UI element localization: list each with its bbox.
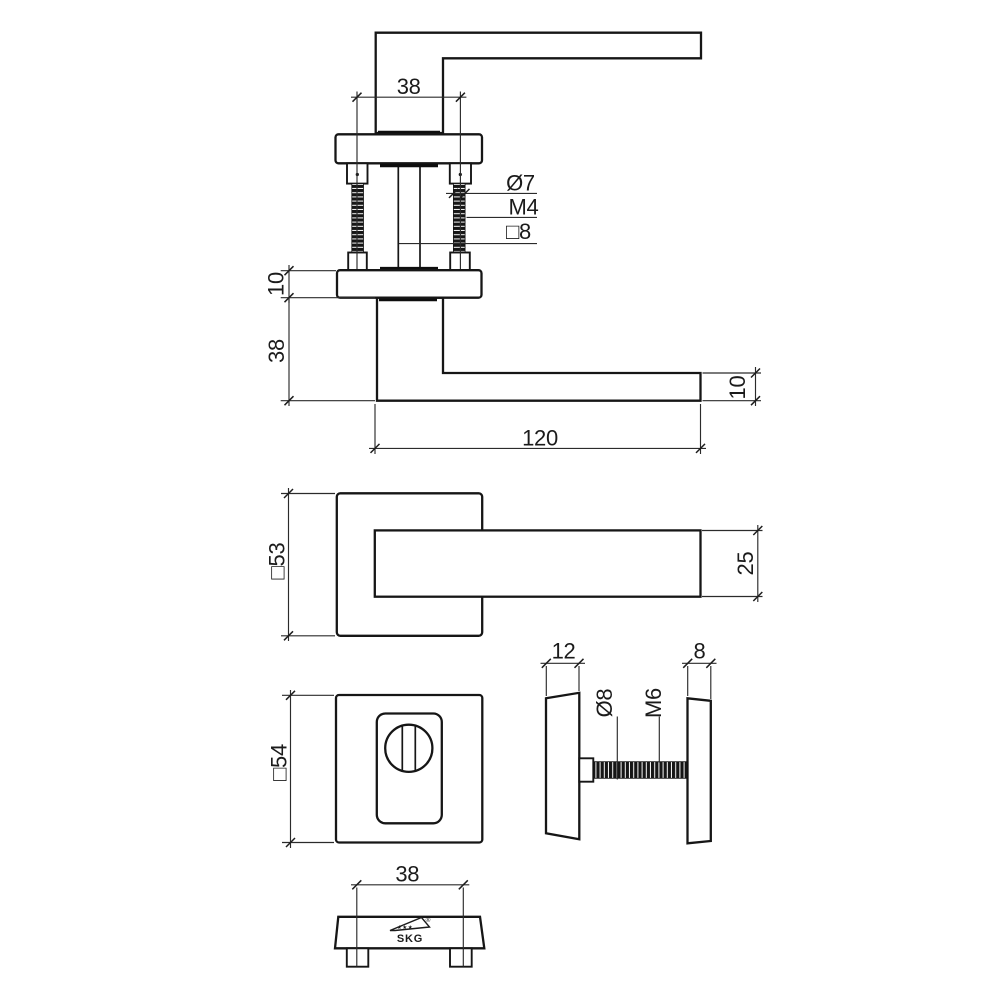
dim-rose-size: □53 bbox=[265, 488, 336, 641]
lever-top-view-outline bbox=[376, 33, 701, 133]
inner-plate-thickness-label: 8 bbox=[694, 639, 706, 664]
exploded-top-view: 38 Ø7 M4 □8 bbox=[336, 33, 702, 273]
dim-lever-width: 25 bbox=[702, 525, 763, 602]
security-rose-side-view: Ø8 M6 12 8 bbox=[541, 639, 717, 844]
bolt-thread-label: M6 bbox=[641, 688, 666, 718]
lever-width-label: 25 bbox=[733, 552, 758, 576]
skg-logo-text: SKG bbox=[397, 933, 423, 945]
grip-height-label: 38 bbox=[264, 339, 289, 363]
rose-size-label: □53 bbox=[265, 543, 290, 580]
leader-bolt-thread: M6 bbox=[641, 688, 666, 763]
left-screw-thread bbox=[352, 184, 364, 253]
neck-width-label: 38 bbox=[397, 74, 421, 99]
technical-drawing-canvas: 38 Ø7 M4 □8 10 bbox=[0, 0, 1000, 1000]
outer-plate-thickness-label: 12 bbox=[552, 639, 576, 664]
dim-grip-height: 38 bbox=[264, 298, 375, 406]
bolt-shoulder bbox=[579, 758, 593, 781]
dim-outer-plate-thickness: 12 bbox=[541, 639, 586, 697]
dim-lever-length: 120 bbox=[369, 404, 706, 454]
spindle-square-label: □8 bbox=[506, 219, 531, 244]
inner-plate-side bbox=[688, 698, 711, 843]
screw-diameter-label: Ø7 bbox=[506, 171, 535, 196]
hole-spacing-label: 38 bbox=[395, 862, 419, 887]
screw-thread-label: M4 bbox=[509, 195, 539, 220]
handle-side-outline bbox=[377, 298, 701, 401]
lever-length-label: 120 bbox=[522, 426, 558, 451]
lever-front-bar bbox=[375, 530, 701, 596]
leader-screw-thread: M4 bbox=[467, 195, 539, 220]
right-foot bbox=[450, 948, 472, 966]
dim-inner-plate-thickness: 8 bbox=[682, 639, 717, 700]
bolt-diameter-label: Ø8 bbox=[592, 689, 617, 718]
bolt-thread bbox=[593, 762, 687, 779]
dim-security-rose-size: □54 bbox=[267, 690, 335, 848]
side-view: 10 38 10 120 bbox=[264, 265, 762, 454]
registered-mark: ® bbox=[426, 916, 431, 924]
skg-stars-icon: ★★★ bbox=[397, 925, 413, 931]
security-rose-front-view: □54 bbox=[267, 690, 483, 848]
security-rose-size-label: □54 bbox=[267, 744, 292, 781]
front-view: □53 25 bbox=[265, 488, 763, 641]
drawing-page: 38 Ø7 M4 □8 10 bbox=[0, 0, 1000, 1000]
rose-side-plate bbox=[337, 270, 482, 298]
bottom-view: 38 ★★★ SKG ® bbox=[335, 862, 484, 967]
dim-lever-thickness: 10 bbox=[703, 367, 762, 406]
cylinder-core-circle bbox=[385, 725, 432, 772]
left-foot bbox=[347, 948, 369, 966]
outer-plate-side bbox=[546, 693, 579, 840]
lever-thickness-label: 10 bbox=[725, 376, 750, 400]
rose-thickness-label: 10 bbox=[264, 272, 289, 296]
